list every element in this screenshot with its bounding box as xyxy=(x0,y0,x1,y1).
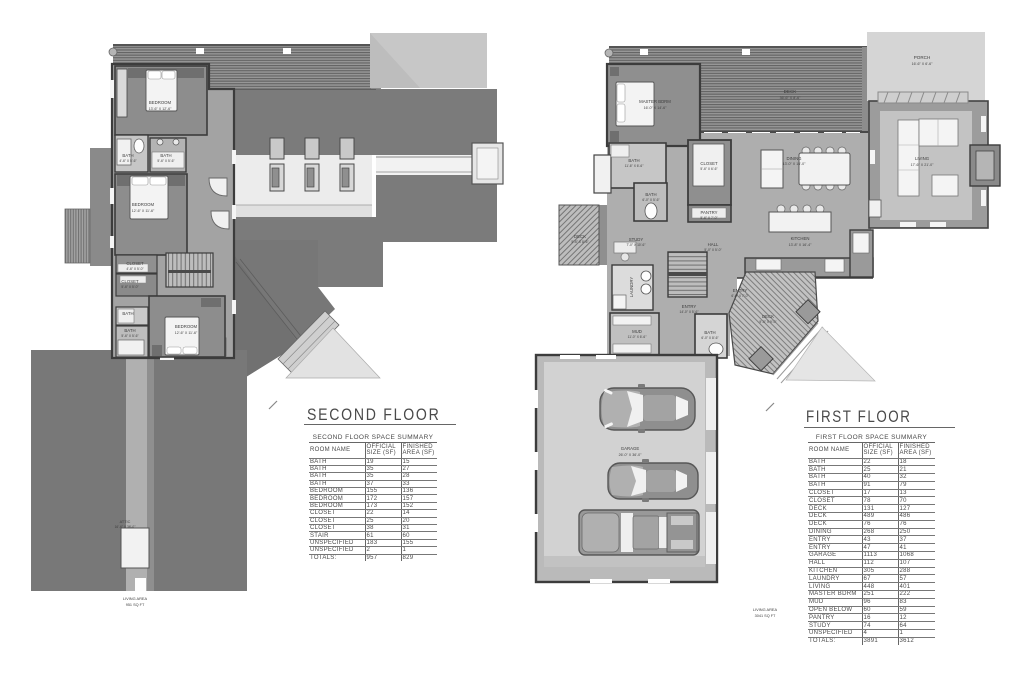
svg-text:5'-6" X 5'-0": 5'-6" X 5'-0" xyxy=(121,285,139,289)
svg-text:26'-0" X 36'-0": 26'-0" X 36'-0" xyxy=(619,453,642,457)
svg-text:MASTER BDRM: MASTER BDRM xyxy=(639,99,671,104)
svg-text:DECK: DECK xyxy=(762,314,774,319)
svg-text:CLOSET: CLOSET xyxy=(700,161,718,166)
svg-text:6'-0" X 5'-6": 6'-0" X 5'-6" xyxy=(642,198,660,202)
svg-text:BATH: BATH xyxy=(122,153,133,158)
svg-text:ENTRY: ENTRY xyxy=(733,288,748,293)
svg-text:3041 SQ FT: 3041 SQ FT xyxy=(755,614,776,618)
svg-text:HALL: HALL xyxy=(708,242,719,247)
svg-text:13'-0" X 16'-0": 13'-0" X 16'-0" xyxy=(783,162,806,166)
svg-text:11'-6" X 6'-6": 11'-6" X 6'-6" xyxy=(625,164,645,168)
svg-text:STUDY: STUDY xyxy=(629,237,644,242)
svg-text:BEDROOM: BEDROOM xyxy=(149,100,172,105)
svg-text:13'-6" X 12'-6": 13'-6" X 12'-6" xyxy=(149,107,172,111)
svg-text:16'-0" X 14'-6": 16'-0" X 14'-6" xyxy=(644,106,667,110)
svg-text:DECK: DECK xyxy=(574,234,586,239)
svg-text:16'-6" X 6'-6": 16'-6" X 6'-6" xyxy=(912,62,933,66)
svg-text:5'-6" X 7'-0": 5'-6" X 7'-0" xyxy=(700,216,718,220)
svg-text:ENTRY: ENTRY xyxy=(682,304,697,309)
svg-text:16'-6" X 36'-0": 16'-6" X 36'-0" xyxy=(115,525,137,529)
svg-text:5'-6" X 5'-6": 5'-6" X 5'-6" xyxy=(157,159,175,163)
svg-text:13'-8" X 16'-4": 13'-8" X 16'-4" xyxy=(789,243,812,247)
svg-text:14'-0" X 5'-6": 14'-0" X 5'-6" xyxy=(680,310,700,314)
svg-text:9'-0" X 9'-0": 9'-0" X 9'-0" xyxy=(759,320,777,324)
svg-text:BATH: BATH xyxy=(160,153,171,158)
svg-text:BEDROOM: BEDROOM xyxy=(175,324,198,329)
svg-text:PORCH: PORCH xyxy=(914,55,931,60)
svg-text:KITCHEN: KITCHEN xyxy=(791,236,810,241)
svg-text:5'-6" X 5'-6": 5'-6" X 5'-6" xyxy=(121,334,139,338)
svg-text:5'-6" X 8'-6": 5'-6" X 8'-6" xyxy=(571,240,589,244)
svg-text:36'-6" X 8'-6": 36'-6" X 8'-6" xyxy=(780,96,801,100)
svg-text:CLOSET: CLOSET xyxy=(126,261,144,266)
svg-text:LIVING AREA: LIVING AREA xyxy=(753,607,778,612)
svg-text:12'-6" X 11'-6": 12'-6" X 11'-6" xyxy=(132,209,155,213)
svg-text:6'-0" X 8'-6": 6'-0" X 8'-6" xyxy=(701,336,719,340)
svg-text:7'-0" X 10'-6": 7'-0" X 10'-6" xyxy=(627,243,647,247)
svg-text:CLOSET: CLOSET xyxy=(121,279,139,284)
svg-text:11'-0" X 6'-6": 11'-0" X 6'-6" xyxy=(628,335,648,339)
svg-text:GARAGE: GARAGE xyxy=(621,446,640,451)
svg-text:BATH: BATH xyxy=(645,192,656,197)
svg-text:MUD: MUD xyxy=(632,329,642,334)
svg-text:4'-6" X 5'-6": 4'-6" X 5'-6" xyxy=(119,159,137,163)
svg-text:DINING: DINING xyxy=(786,156,802,161)
svg-text:LAUNDRY: LAUNDRY xyxy=(629,277,634,298)
svg-text:BATH: BATH xyxy=(704,330,715,335)
svg-text:LIVING: LIVING xyxy=(915,156,930,161)
svg-text:17'-6" X 21'-0": 17'-6" X 21'-0" xyxy=(911,163,934,167)
svg-text:BEDROOM: BEDROOM xyxy=(132,202,155,207)
svg-text:5'-6" X 6'-6": 5'-6" X 6'-6" xyxy=(700,167,718,171)
svg-text:PANTRY: PANTRY xyxy=(700,210,717,215)
svg-text:951 SQ FT: 951 SQ FT xyxy=(126,603,145,607)
svg-text:6'-0" X 7'-0": 6'-0" X 7'-0" xyxy=(731,294,749,298)
svg-text:BATH: BATH xyxy=(122,311,133,316)
svg-text:5'-0" X 5'-0": 5'-0" X 5'-0" xyxy=(704,248,722,252)
svg-text:12'-6" X 11'-6": 12'-6" X 11'-6" xyxy=(175,331,198,335)
svg-text:4'-6" X 5'-0": 4'-6" X 5'-0" xyxy=(126,267,144,271)
svg-text:LIVING AREA: LIVING AREA xyxy=(123,596,148,601)
svg-text:BATH: BATH xyxy=(628,158,639,163)
svg-text:DECK: DECK xyxy=(784,89,798,94)
svg-text:ATTIC: ATTIC xyxy=(120,520,131,524)
svg-text:BATH: BATH xyxy=(124,328,135,333)
